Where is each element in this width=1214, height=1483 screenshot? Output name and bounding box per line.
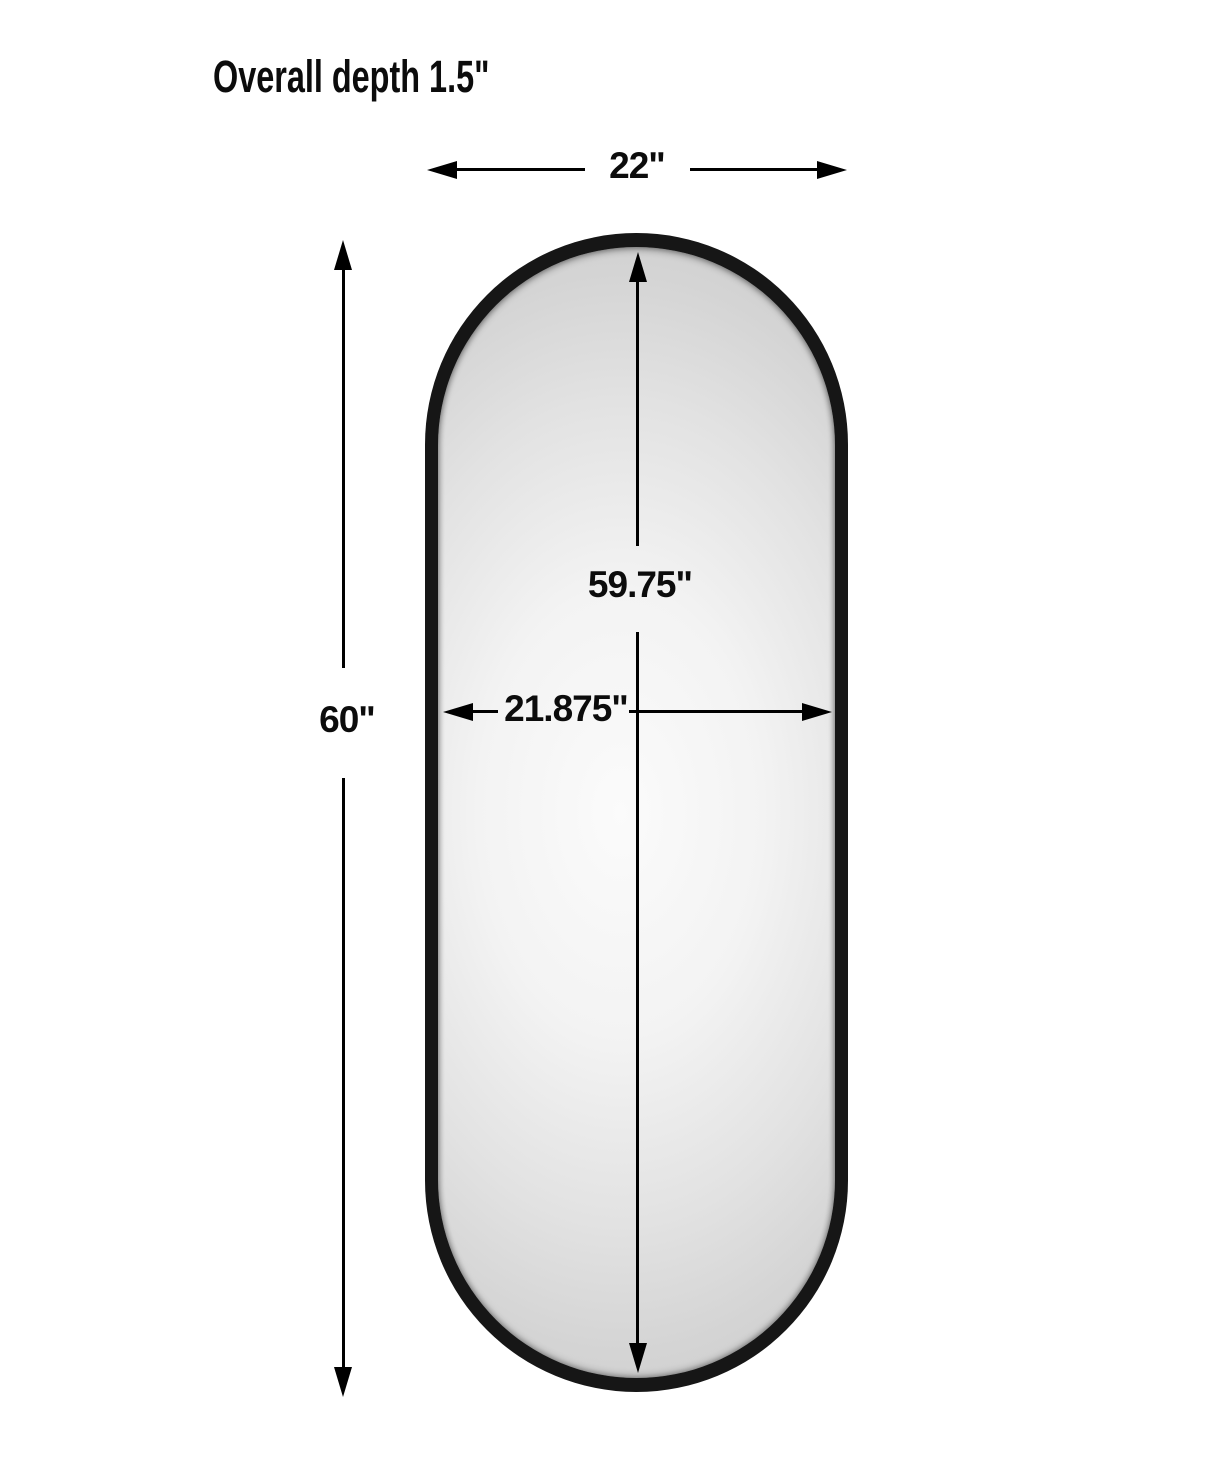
arrowhead-left-icon bbox=[443, 703, 473, 721]
arrowhead-up-icon bbox=[629, 252, 647, 282]
dimension-line bbox=[342, 778, 345, 1375]
dimension-line bbox=[342, 268, 345, 668]
glass-width-label: 21.875" bbox=[499, 690, 633, 727]
dimension-line bbox=[629, 710, 805, 713]
mirror-dimension-diagram: Overall depth 1.5" 22" 60" 59.75" 21.875… bbox=[0, 0, 1214, 1483]
dimension-line bbox=[452, 168, 585, 171]
overall-width-label: 22" bbox=[585, 147, 689, 184]
dimension-line bbox=[636, 632, 639, 1351]
dimension-line bbox=[690, 168, 820, 171]
arrowhead-right-icon bbox=[802, 703, 832, 721]
arrowhead-down-icon bbox=[629, 1343, 647, 1373]
dimension-line bbox=[636, 280, 639, 546]
dimension-line bbox=[470, 710, 498, 713]
glass-height-label: 59.75" bbox=[538, 566, 742, 603]
overall-height-label: 60" bbox=[293, 701, 401, 738]
overall-depth-label: Overall depth 1.5" bbox=[213, 54, 489, 99]
arrowhead-down-icon bbox=[334, 1367, 352, 1397]
arrowhead-right-icon bbox=[817, 161, 847, 179]
arrowhead-up-icon bbox=[334, 240, 352, 270]
